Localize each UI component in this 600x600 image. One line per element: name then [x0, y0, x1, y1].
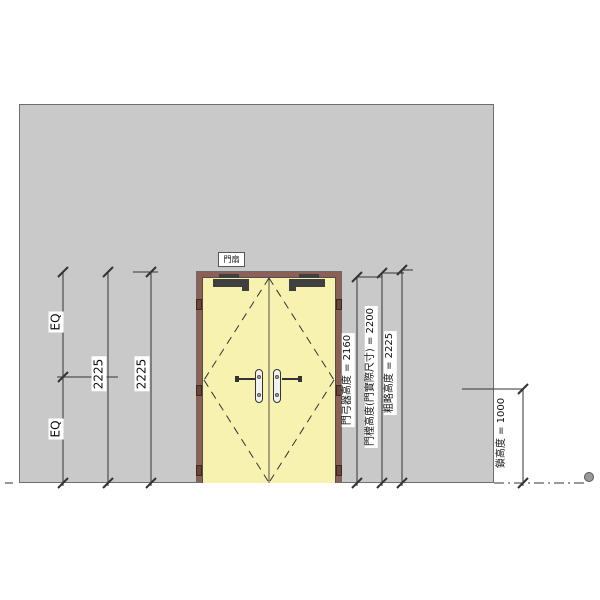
- dim-label-eq-lower[interactable]: EQ: [49, 418, 64, 439]
- lever-handle-right-end: [298, 376, 302, 382]
- door-tag[interactable]: 門扇: [218, 252, 245, 267]
- door-closer-left-arm: [242, 287, 249, 291]
- level-marker-icon[interactable]: [585, 473, 594, 482]
- escutcheon-left-screw-bottom: [257, 393, 261, 397]
- door-closer-left-plate: [219, 274, 239, 278]
- dim-label-door-height-actual[interactable]: 門樘高度(門實際尺寸) = 2200: [365, 306, 378, 448]
- door-closer-right-plate: [299, 274, 319, 278]
- dimension-eq-string[interactable]: [57, 267, 118, 488]
- escutcheon-right-screw-bottom: [275, 393, 279, 397]
- door-closer-right-arm: [289, 287, 296, 291]
- annotation-overlay: [0, 0, 600, 600]
- hinge-left-top: [196, 299, 202, 310]
- escutcheon-right-screw-top: [275, 375, 279, 379]
- dim-label-2225-outer[interactable]: 2225: [135, 357, 150, 392]
- hinge-left-bottom: [196, 465, 202, 476]
- door-closer-right: [289, 279, 325, 287]
- dim-label-door-closer-height[interactable]: 門弓器高度 = 2160: [342, 333, 355, 427]
- hinge-right-top: [336, 299, 342, 310]
- lever-handle-left: [237, 378, 255, 380]
- dim-label-rough-height[interactable]: 粗略高度 = 2225: [384, 331, 397, 415]
- door-elevation-drawing: 門扇 EQ EQ 2225 2225 門弓器高度 = 2160 門樘高度(門實際…: [0, 0, 600, 600]
- hinge-right-bottom: [336, 465, 342, 476]
- dim-label-eq-upper[interactable]: EQ: [49, 311, 64, 332]
- lever-handle-left-end: [235, 376, 239, 382]
- escutcheon-left-screw-top: [257, 375, 261, 379]
- dimension-rough-height[interactable]: [397, 265, 413, 488]
- door-closer-left: [213, 279, 249, 287]
- swing-line: [269, 278, 334, 380]
- dim-label-lock-height[interactable]: 鎖高度 = 1000: [496, 396, 509, 470]
- hinge-left-middle: [196, 385, 202, 396]
- swing-line: [204, 278, 269, 380]
- dim-label-2225-inner[interactable]: 2225: [92, 357, 107, 392]
